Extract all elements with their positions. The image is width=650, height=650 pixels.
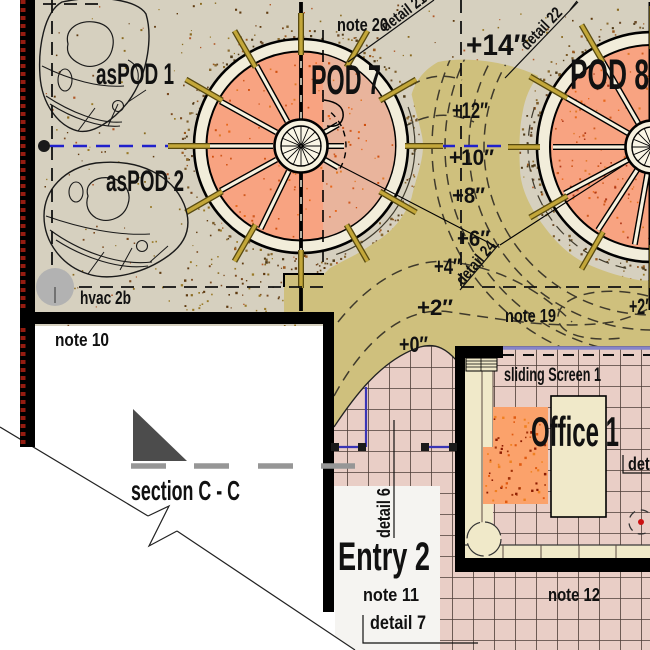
svg-text:asPOD 2: asPOD 2	[106, 165, 184, 198]
svg-text:+0″: +0″	[399, 332, 428, 357]
svg-text:+10″: +10″	[449, 145, 494, 170]
svg-text:note 10: note 10	[55, 330, 109, 350]
svg-text:+2″: +2″	[417, 295, 453, 320]
svg-text:+12″: +12″	[452, 98, 488, 123]
svg-text:note 19: note 19	[505, 306, 556, 326]
svg-text:+4″: +4″	[434, 254, 461, 279]
svg-text:Office 1: Office 1	[531, 408, 619, 455]
svg-text:section C - C: section C - C	[131, 475, 240, 506]
svg-text:+2″: +2″	[629, 294, 650, 319]
svg-text:+6″: +6″	[457, 226, 490, 251]
svg-text:POD 7: POD 7	[311, 56, 381, 103]
svg-text:note 12: note 12	[548, 585, 600, 605]
svg-text:sliding Screen 1: sliding Screen 1	[504, 365, 601, 386]
svg-text:asPOD 1: asPOD 1	[96, 58, 174, 91]
svg-text:detail 6: detail 6	[374, 488, 394, 538]
svg-text:POD 8: POD 8	[570, 51, 649, 99]
svg-text:detail 7: detail 7	[370, 613, 426, 634]
svg-text:+14″: +14″	[466, 29, 527, 62]
svg-text:detail 8: detail 8	[628, 454, 650, 474]
svg-text:Entry 2: Entry 2	[338, 535, 430, 579]
svg-text:+8″: +8″	[452, 183, 485, 208]
svg-text:hvac 2b: hvac 2b	[80, 288, 131, 308]
svg-text:note 11: note 11	[363, 585, 419, 605]
